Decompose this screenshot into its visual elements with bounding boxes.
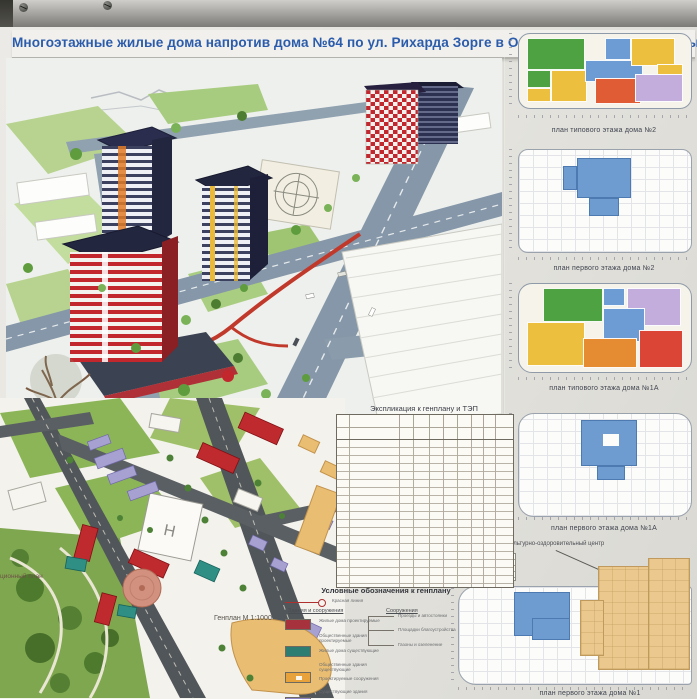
legend-bracket-tick: [368, 630, 394, 631]
house1-blue-block: [532, 618, 570, 640]
dim-ticks: [509, 149, 512, 251]
board-seam: [503, 57, 505, 429]
dim-ticks: [509, 283, 512, 371]
legend-bracket-tick: [368, 616, 394, 617]
legend-bracket: [368, 616, 369, 646]
screw-icon: [103, 1, 112, 10]
legend-item-label: Общественные здания проектируемые: [319, 633, 389, 643]
plan-caption-3: план типового этажа дома №1А: [504, 385, 697, 392]
dim-ticks: [518, 517, 690, 520]
presentation-board: Многоэтажные жилые дома напротив дома №6…: [0, 27, 697, 699]
house1-tan-block: [648, 558, 690, 670]
aerial-render: [6, 58, 502, 430]
red-line-symbol: [285, 602, 321, 603]
table-caption: Экспликация к генплану и ТЭП: [336, 404, 512, 413]
h-building: Н: [138, 493, 203, 561]
red-line-label: Красная линия: [332, 598, 402, 603]
genplan-caption: Генплан М 1:1000: [214, 615, 272, 622]
legend-item-label: Жилые дома проектируемые: [319, 618, 389, 623]
legend-item-label: Жилые дома существующие: [319, 648, 389, 653]
legend-swatch-orange: [285, 672, 311, 683]
legend-group-left-title: Здания и сооружения: [288, 608, 343, 614]
legend-item-label: Газоны и озеленение: [398, 642, 470, 647]
fitness-leader-line: [556, 550, 600, 570]
table-header: [337, 415, 513, 440]
plan-caption-1: план типового этажа дома №2: [504, 127, 697, 134]
dim-ticks: [518, 115, 690, 118]
aerial-render-svg: [6, 58, 502, 430]
dim-ticks: [518, 257, 690, 260]
situational-plan-label: ционный план: [0, 573, 43, 580]
floorplan-typical-house1a: [518, 283, 692, 373]
legend-swatch-teal: [285, 646, 311, 657]
floorplan-first-house2: [518, 149, 692, 253]
table-body: [337, 440, 513, 587]
dim-ticks: [451, 588, 454, 683]
plan-caption-4: план первого этажа дома №1А: [504, 525, 697, 532]
house1-tan-block: [580, 600, 604, 656]
plan-caption-5: план первого этажа дома №1: [480, 690, 697, 697]
explication-table: [336, 414, 514, 588]
legend-bracket-tick: [368, 645, 394, 646]
legend-item-label: Площадки благоустройства: [398, 627, 470, 632]
legend-heading: Условные обозначения к генплану: [266, 586, 506, 595]
plan-caption-2: план первого этажа дома №2: [504, 265, 697, 272]
floorplan-typical-house2: [518, 33, 692, 109]
floorplan-first-house1a: [518, 413, 692, 517]
photo-of-presentation-board: Многоэтажные жилые дома напротив дома №6…: [0, 0, 697, 699]
legend-item-label: Проезды и автостоянки: [398, 613, 470, 618]
round-plaza: [123, 569, 161, 607]
legend-swatch-red: [285, 619, 311, 630]
tower-striped-2: [196, 166, 272, 281]
legend-item-label: Существующие здания: [319, 689, 389, 694]
dim-ticks: [518, 377, 690, 380]
tower-red-checker: [364, 82, 426, 164]
legend-item-label: Проектируемые сооружения: [319, 676, 389, 681]
legend-item-label: Общественные здания существующие: [319, 662, 389, 672]
dim-ticks: [509, 33, 512, 107]
screw-icon: [19, 3, 28, 12]
